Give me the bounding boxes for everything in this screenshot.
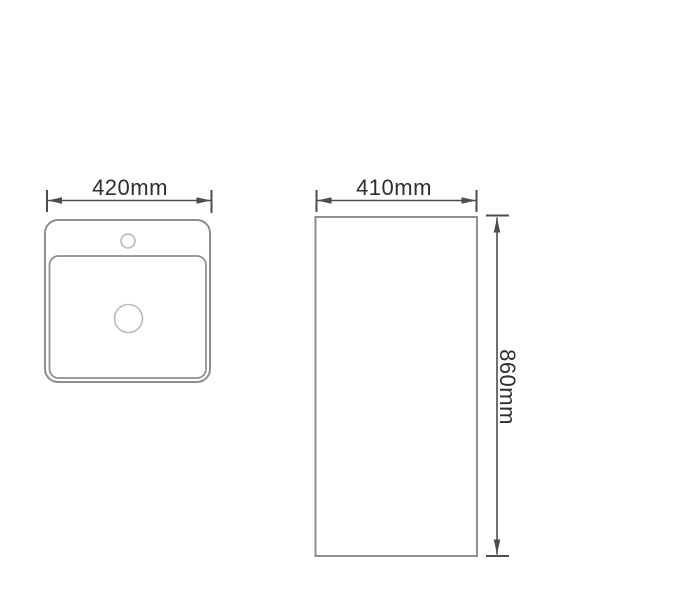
pedestal-outline bbox=[316, 217, 478, 556]
top-view-width-label: 420mm bbox=[92, 175, 168, 200]
top-view-width-dimension: 420mm bbox=[47, 175, 212, 213]
front-view-width-dimension: 410mm bbox=[317, 175, 477, 212]
front-view bbox=[316, 217, 478, 556]
front-view-height-label: 860mm bbox=[495, 349, 520, 425]
arrowhead-down-icon bbox=[494, 540, 501, 555]
front-view-height-dimension: 860mm bbox=[486, 216, 520, 557]
arrowhead-left-icon bbox=[48, 197, 63, 204]
basin-outer-outline bbox=[45, 220, 210, 382]
top-view bbox=[45, 220, 210, 382]
drawing-canvas: 420mm 410mm 860mm bbox=[0, 0, 678, 600]
arrowhead-left-icon bbox=[317, 197, 332, 204]
arrowhead-right-icon bbox=[462, 197, 477, 204]
arrowhead-up-icon bbox=[494, 218, 501, 233]
arrowhead-right-icon bbox=[197, 197, 212, 204]
basin-technical-drawing: 420mm 410mm 860mm bbox=[0, 0, 678, 600]
front-view-width-label: 410mm bbox=[356, 175, 432, 200]
